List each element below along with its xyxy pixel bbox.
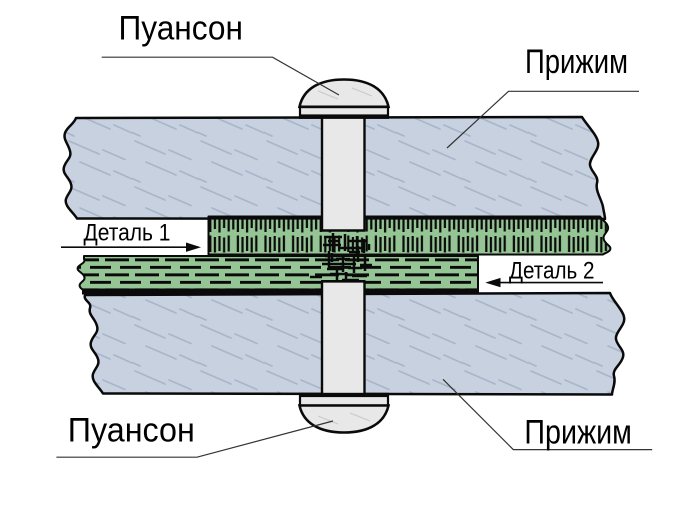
svg-text:Пуансон: Пуансон xyxy=(119,9,244,47)
svg-text:Прижим: Прижим xyxy=(525,43,628,81)
svg-text:Деталь 2: Деталь 2 xyxy=(509,257,595,284)
svg-text:Деталь 1: Деталь 1 xyxy=(84,219,171,246)
svg-text:Прижим: Прижим xyxy=(524,413,632,451)
svg-text:Пуансон: Пуансон xyxy=(68,411,195,449)
